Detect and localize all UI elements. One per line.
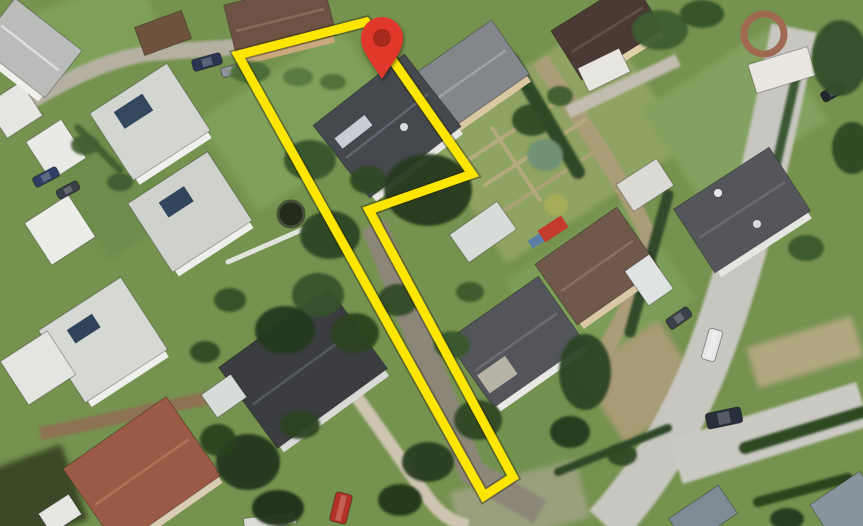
detail-circle — [278, 201, 304, 227]
tree — [680, 0, 724, 28]
tree — [200, 424, 236, 456]
tree — [214, 288, 246, 312]
pin-hole — [373, 29, 391, 47]
tree — [550, 416, 590, 448]
tree — [456, 282, 484, 302]
detail-circle — [753, 220, 761, 228]
aerial-scene-canvas — [0, 0, 863, 526]
tree — [527, 139, 563, 171]
tree — [107, 173, 133, 191]
tree — [320, 74, 346, 90]
tree — [402, 442, 454, 482]
tree — [71, 135, 99, 155]
tree — [331, 313, 379, 353]
tree — [190, 341, 220, 363]
tree — [632, 10, 688, 50]
tree — [607, 444, 637, 466]
tree — [255, 306, 315, 354]
tree — [350, 166, 386, 194]
detail-circle — [714, 189, 722, 197]
tree — [559, 334, 611, 410]
aerial-map-view[interactable] — [0, 0, 863, 526]
tree — [547, 86, 573, 106]
detail-circle — [400, 123, 408, 131]
tree — [252, 490, 304, 526]
car-windshield — [717, 411, 731, 425]
tree — [283, 68, 313, 86]
tree — [378, 484, 422, 516]
tree — [280, 411, 320, 439]
tree — [544, 194, 568, 216]
tree — [512, 104, 552, 136]
tree — [788, 235, 824, 261]
